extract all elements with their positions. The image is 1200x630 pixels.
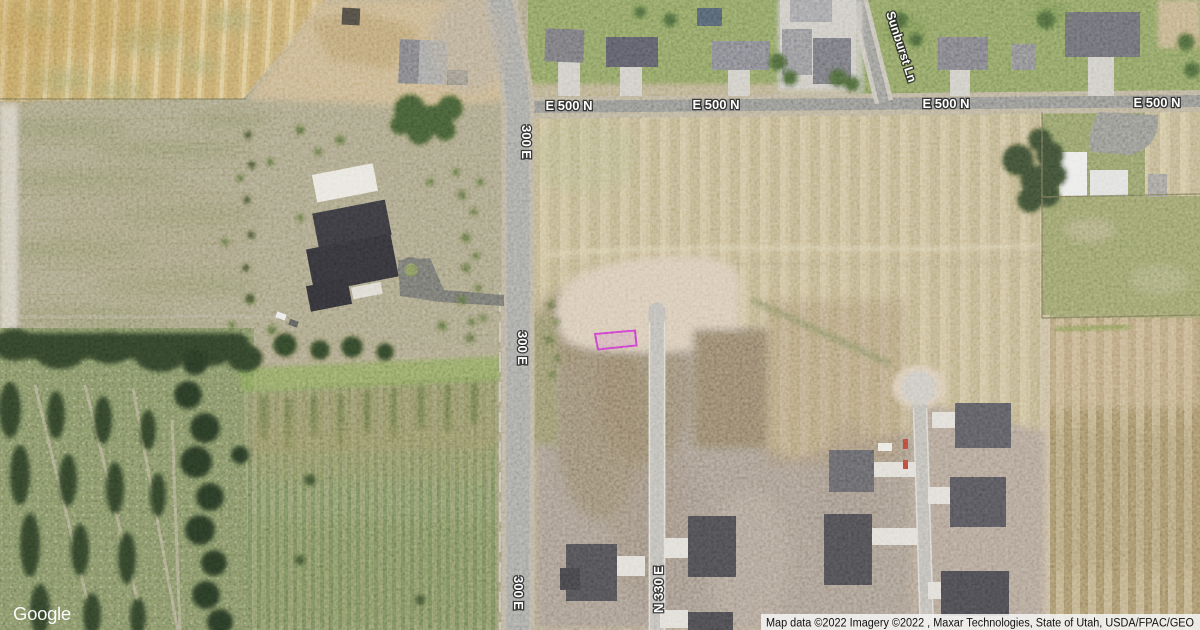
svg-text:N 330 E: N 330 E	[651, 566, 666, 613]
svg-text:300 E: 300 E	[515, 331, 530, 365]
svg-text:E 500 N: E 500 N	[693, 97, 740, 112]
svg-text:E 500 N: E 500 N	[546, 98, 593, 113]
svg-text:E 500 N: E 500 N	[923, 96, 970, 111]
svg-text:E 500 N: E 500 N	[1134, 95, 1181, 110]
svg-text:300 E: 300 E	[511, 576, 526, 610]
svg-text:300 E: 300 E	[519, 125, 534, 159]
svg-text:Google: Google	[13, 603, 71, 624]
svg-text:Map data ©2022 Imagery ©2022 ,: Map data ©2022 Imagery ©2022 , Maxar Tec…	[766, 618, 1194, 630]
